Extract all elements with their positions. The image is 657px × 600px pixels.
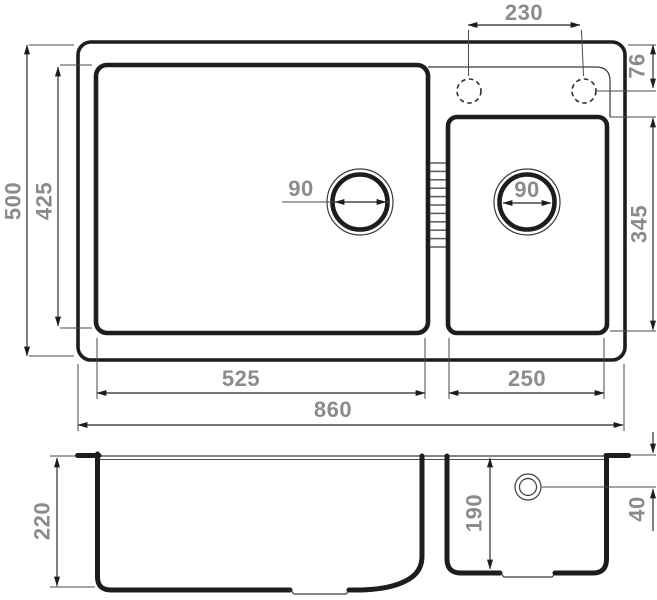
main-drain: 90 bbox=[282, 169, 393, 235]
main-bowl bbox=[96, 65, 428, 333]
tap-deck-edge bbox=[428, 67, 610, 117]
dim-secondary-bowl-height: 190 bbox=[462, 458, 491, 569]
overflow-hole-inner bbox=[520, 479, 537, 496]
svg-text:525: 525 bbox=[222, 366, 260, 391]
drainer-grooves bbox=[430, 163, 446, 247]
svg-text:230: 230 bbox=[505, 0, 543, 25]
dim-main-drain: 90 bbox=[288, 176, 313, 201]
dim-secondary-drain: 90 bbox=[514, 177, 539, 202]
svg-text:500: 500 bbox=[1, 182, 26, 220]
secondary-drain: 90 bbox=[494, 169, 560, 235]
svg-text:250: 250 bbox=[508, 366, 546, 391]
dim-overflow-inset: 40 bbox=[625, 432, 657, 531]
dim-secondary-bowl-width: 250 bbox=[449, 338, 604, 399]
dim-secondary-bowl-depth: 345 bbox=[610, 117, 656, 331]
dim-bowls-depth: 425 bbox=[32, 65, 93, 328]
svg-text:40: 40 bbox=[625, 496, 650, 521]
svg-text:76: 76 bbox=[625, 53, 650, 78]
svg-text:345: 345 bbox=[627, 205, 652, 243]
main-bowl-section bbox=[98, 454, 423, 594]
secondary-bowl bbox=[448, 117, 607, 333]
front-section-view: 220 190 40 bbox=[30, 432, 657, 594]
svg-text:860: 860 bbox=[314, 397, 352, 422]
svg-text:425: 425 bbox=[32, 182, 57, 220]
dim-main-bowl-height: 220 bbox=[30, 456, 96, 587]
dim-main-bowl-width: 525 bbox=[97, 338, 425, 399]
svg-text:220: 220 bbox=[30, 502, 55, 540]
tap-hole-right bbox=[572, 79, 596, 103]
tap-hole-left bbox=[457, 79, 481, 103]
top-view: 90 90 230 76 345 bbox=[1, 0, 657, 431]
dim-tap-holes-spacing: 230 bbox=[468, 0, 584, 76]
sink-outer-rim bbox=[78, 42, 625, 360]
sink-technical-drawing: 90 90 230 76 345 bbox=[0, 0, 657, 600]
drawing-canvas: 90 90 230 76 345 bbox=[0, 0, 657, 600]
svg-text:190: 190 bbox=[462, 494, 487, 532]
